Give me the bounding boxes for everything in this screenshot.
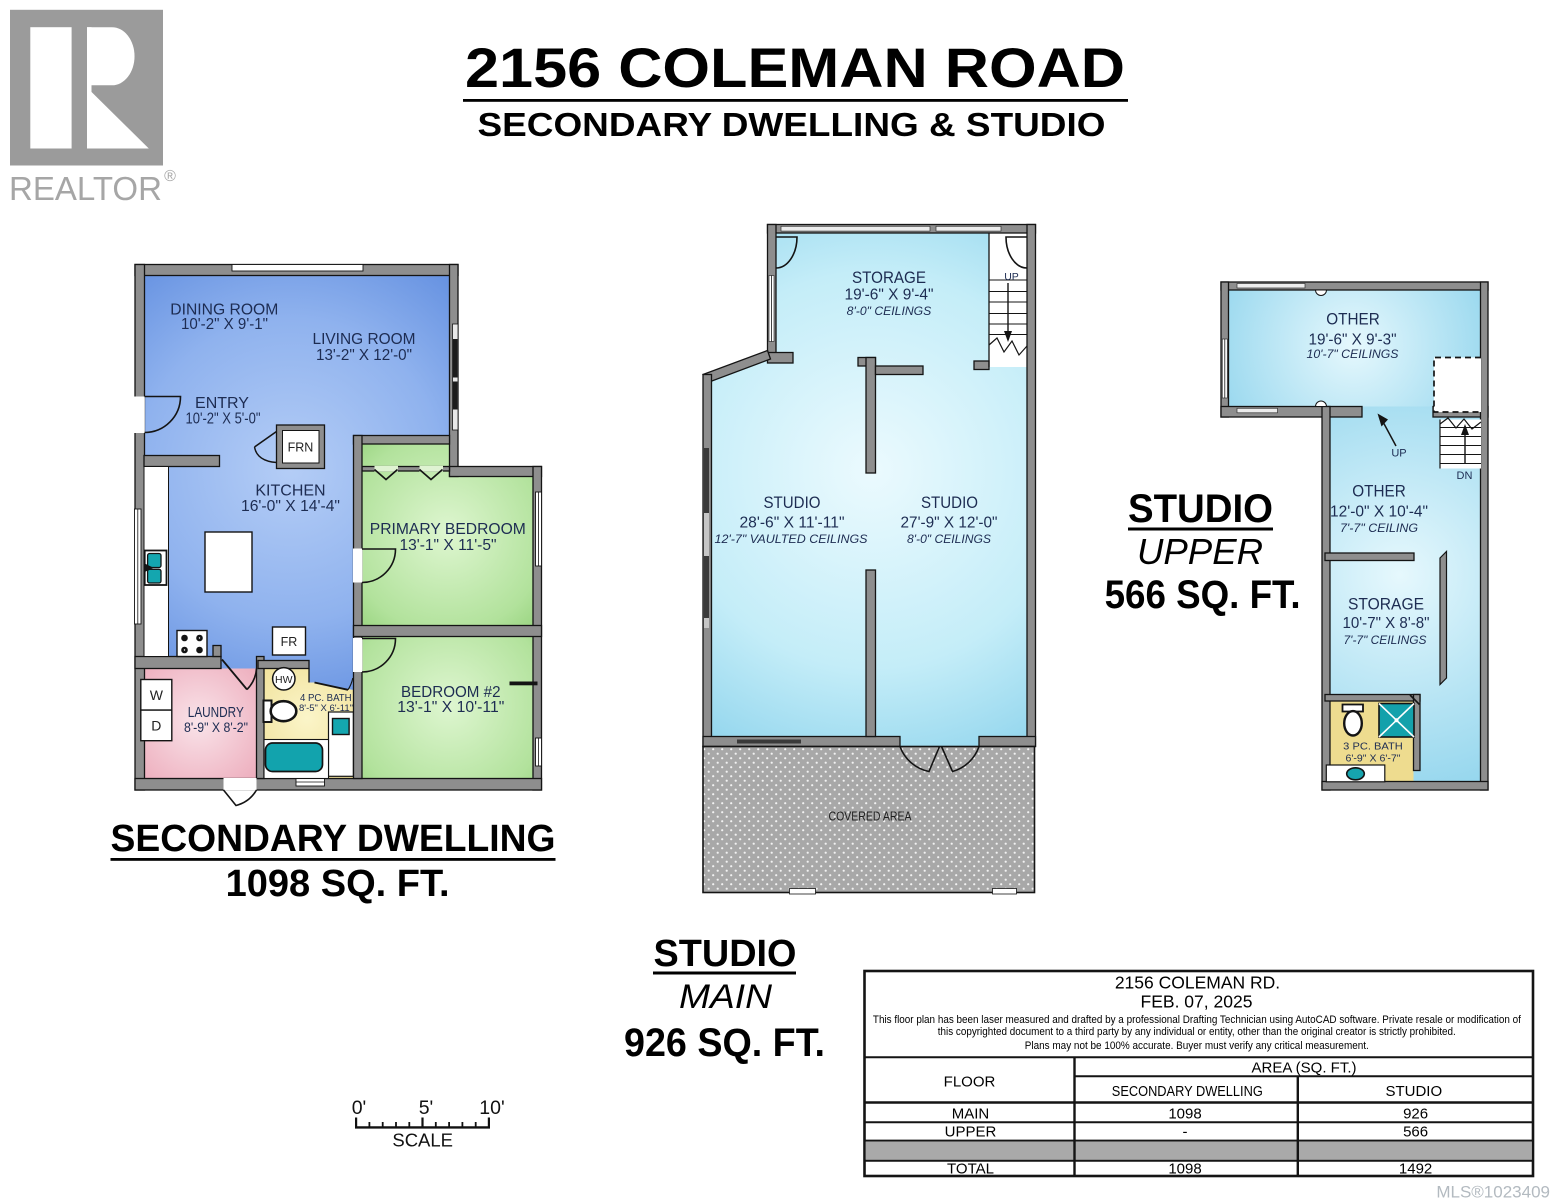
svg-text:926: 926 bbox=[1403, 1105, 1428, 1122]
svg-text:-: - bbox=[1183, 1124, 1188, 1141]
svg-text:1492: 1492 bbox=[1399, 1161, 1432, 1178]
svg-text:LAUNDRY: LAUNDRY bbox=[188, 704, 244, 721]
svg-text:19'-6" X 9'-3": 19'-6" X 9'-3" bbox=[1309, 332, 1397, 349]
svg-text:AREA (SQ. FT.): AREA (SQ. FT.) bbox=[1251, 1060, 1356, 1077]
svg-text:FR: FR bbox=[281, 635, 298, 649]
svg-text:3 PC. BATH: 3 PC. BATH bbox=[1343, 742, 1403, 753]
svg-text:2156 COLEMAN ROAD: 2156 COLEMAN ROAD bbox=[465, 37, 1125, 99]
svg-text:6'-9" X 6'-7": 6'-9" X 6'-7" bbox=[1346, 754, 1401, 765]
svg-text:®: ® bbox=[164, 168, 176, 185]
svg-text:566 SQ. FT.: 566 SQ. FT. bbox=[1105, 573, 1301, 617]
svg-text:28'-6" X 11'-11": 28'-6" X 11'-11" bbox=[740, 515, 845, 532]
svg-text:8'-0" CEILINGS: 8'-0" CEILINGS bbox=[907, 534, 991, 546]
svg-text:1098: 1098 bbox=[1168, 1161, 1201, 1178]
svg-text:10'-7" X 8'-8": 10'-7" X 8'-8" bbox=[1343, 615, 1430, 632]
svg-text:STUDIO: STUDIO bbox=[1128, 487, 1273, 531]
svg-text:1098: 1098 bbox=[1168, 1105, 1201, 1122]
svg-text:FRN: FRN bbox=[288, 441, 314, 455]
svg-text:LIVING ROOM: LIVING ROOM bbox=[313, 331, 416, 348]
svg-text:MAIN: MAIN bbox=[952, 1105, 990, 1122]
svg-text:13'-2" X 12'-0": 13'-2" X 12'-0" bbox=[316, 347, 412, 364]
svg-text:FLOOR: FLOOR bbox=[944, 1074, 996, 1091]
svg-text:STORAGE: STORAGE bbox=[852, 269, 926, 287]
svg-text:MLS®1023409: MLS®1023409 bbox=[1436, 1183, 1550, 1200]
svg-text:KITCHEN: KITCHEN bbox=[255, 483, 325, 500]
svg-text:HW: HW bbox=[275, 674, 293, 686]
svg-text:13'-1" X 10'-11": 13'-1" X 10'-11" bbox=[397, 699, 504, 716]
svg-text:1098 SQ. FT.: 1098 SQ. FT. bbox=[226, 863, 450, 905]
svg-text:SCALE: SCALE bbox=[392, 1130, 453, 1151]
svg-text:4 PC. BATH: 4 PC. BATH bbox=[300, 693, 352, 704]
svg-text:566: 566 bbox=[1403, 1124, 1428, 1141]
svg-text:DN: DN bbox=[1457, 470, 1473, 482]
svg-text:this copyrighted document to a: this copyrighted document to a third par… bbox=[938, 1026, 1456, 1038]
svg-text:D: D bbox=[151, 718, 161, 734]
svg-text:OTHER: OTHER bbox=[1352, 483, 1406, 501]
svg-text:13'-1" X 11'-5": 13'-1" X 11'-5" bbox=[400, 537, 497, 554]
svg-text:10'-7" CEILINGS: 10'-7" CEILINGS bbox=[1307, 349, 1399, 361]
svg-text:8'-9" X 8'-2": 8'-9" X 8'-2" bbox=[184, 720, 248, 735]
svg-text:TOTAL: TOTAL bbox=[947, 1161, 994, 1178]
svg-text:16'-0" X 14'-4": 16'-0" X 14'-4" bbox=[241, 498, 340, 515]
svg-text:2156 COLEMAN RD.: 2156 COLEMAN RD. bbox=[1115, 973, 1280, 993]
svg-text:STUDIO: STUDIO bbox=[921, 494, 978, 512]
svg-text:UP: UP bbox=[1004, 271, 1019, 283]
svg-text:COVERED AREA: COVERED AREA bbox=[829, 810, 913, 824]
svg-text:FEB. 07, 2025: FEB. 07, 2025 bbox=[1141, 992, 1253, 1012]
svg-text:10': 10' bbox=[479, 1097, 504, 1119]
svg-text:12'-7" VAULTED CEILINGS: 12'-7" VAULTED CEILINGS bbox=[715, 534, 868, 546]
svg-text:5': 5' bbox=[419, 1097, 434, 1119]
svg-text:19'-6" X 9'-4": 19'-6" X 9'-4" bbox=[845, 287, 934, 304]
svg-text:W: W bbox=[150, 687, 164, 703]
svg-text:ENTRY: ENTRY bbox=[195, 395, 249, 412]
svg-text:SECONDARY DWELLING: SECONDARY DWELLING bbox=[111, 818, 556, 860]
svg-text:STUDIO: STUDIO bbox=[764, 494, 821, 512]
svg-text:UPPER: UPPER bbox=[1137, 531, 1263, 572]
svg-text:This floor plan has been laser: This floor plan has been laser measured … bbox=[873, 1014, 1522, 1026]
svg-text:STORAGE: STORAGE bbox=[1348, 596, 1424, 614]
svg-text:8'-0" CEILINGS: 8'-0" CEILINGS bbox=[847, 306, 932, 318]
svg-text:OTHER: OTHER bbox=[1326, 311, 1380, 329]
svg-text:0': 0' bbox=[352, 1097, 367, 1119]
svg-text:926 SQ. FT.: 926 SQ. FT. bbox=[624, 1021, 825, 1065]
svg-text:10'-2" X 5'-0": 10'-2" X 5'-0" bbox=[186, 411, 261, 428]
svg-text:UPPER: UPPER bbox=[945, 1124, 997, 1141]
svg-text:UP: UP bbox=[1391, 448, 1406, 460]
svg-text:27'-9" X 12'-0": 27'-9" X 12'-0" bbox=[901, 515, 998, 532]
svg-text:STUDIO: STUDIO bbox=[1385, 1083, 1442, 1100]
svg-text:12'-0" X 10'-4": 12'-0" X 10'-4" bbox=[1330, 504, 1428, 521]
svg-text:7'-7" CEILINGS: 7'-7" CEILINGS bbox=[1344, 635, 1427, 647]
svg-text:PRIMARY BEDROOM: PRIMARY BEDROOM bbox=[370, 521, 526, 538]
svg-text:SECONDARY DWELLING & STUDIO: SECONDARY DWELLING & STUDIO bbox=[478, 107, 1106, 144]
svg-text:7'-7" CEILING: 7'-7" CEILING bbox=[1340, 523, 1418, 535]
svg-text:Plans may not be 100% accurate: Plans may not be 100% accurate. Buyer mu… bbox=[1025, 1040, 1369, 1052]
svg-text:10'-2" X 9'-1": 10'-2" X 9'-1" bbox=[181, 316, 268, 333]
svg-text:MAIN: MAIN bbox=[679, 978, 772, 1016]
svg-text:STUDIO: STUDIO bbox=[654, 933, 797, 975]
svg-text:SECONDARY DWELLING: SECONDARY DWELLING bbox=[1112, 1083, 1263, 1100]
svg-text:8'-5" X 6'-11": 8'-5" X 6'-11" bbox=[299, 703, 353, 713]
svg-text:REALTOR: REALTOR bbox=[9, 170, 162, 207]
